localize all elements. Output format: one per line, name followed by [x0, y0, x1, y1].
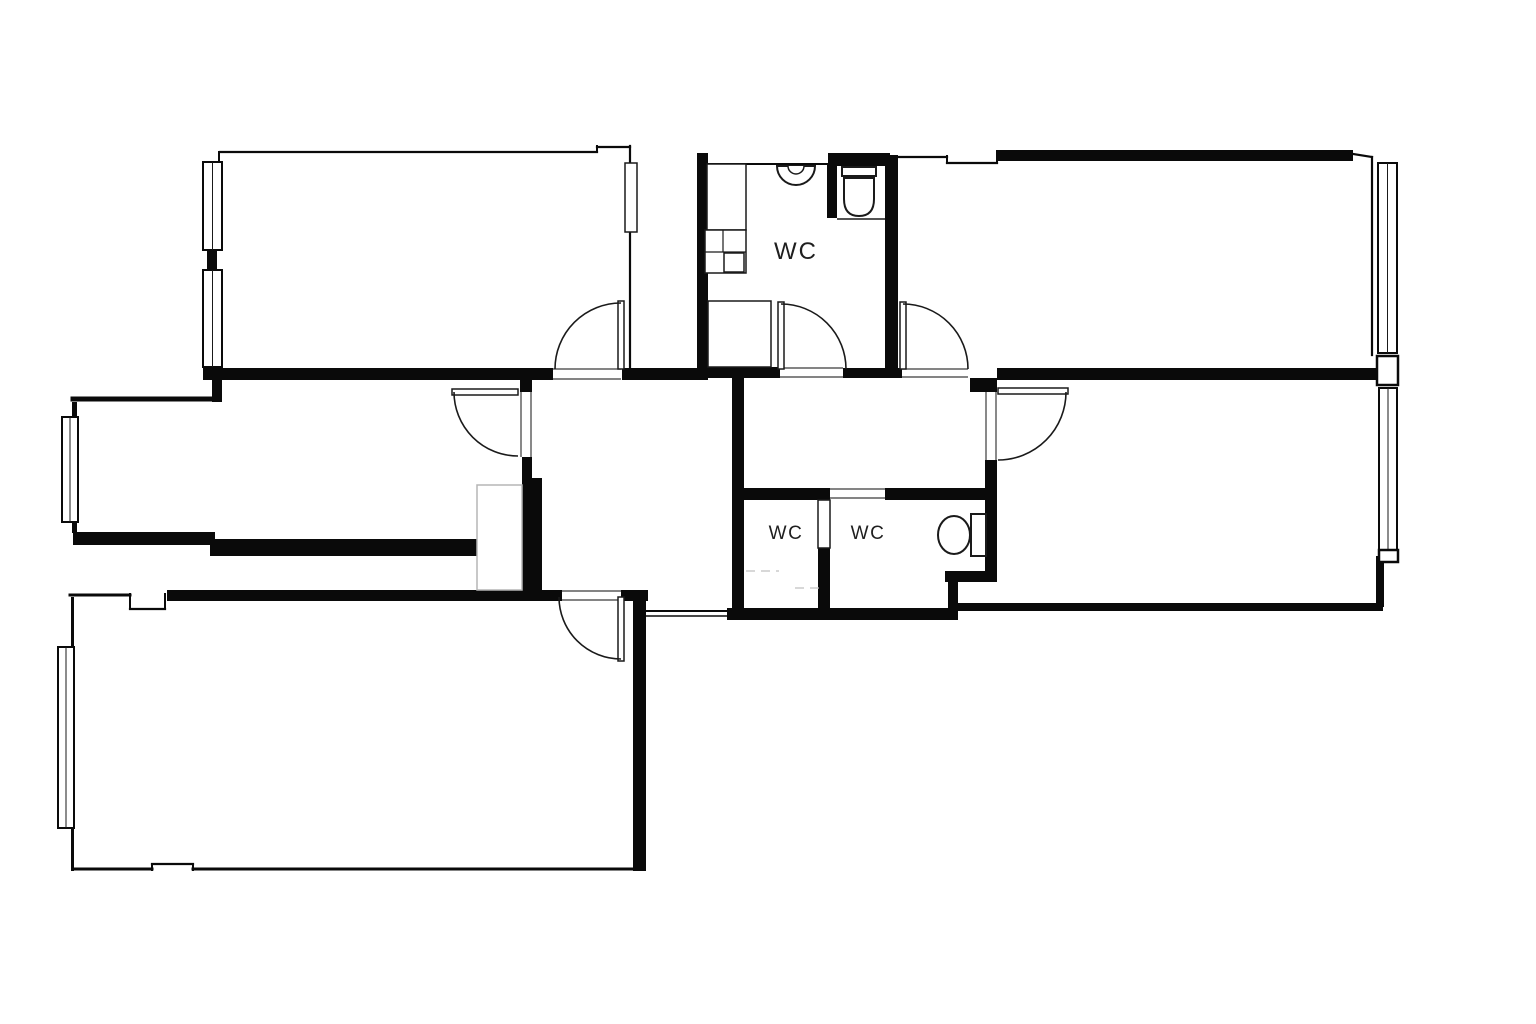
wall [885, 488, 997, 500]
wc-label-left: WC [769, 523, 804, 544]
wall [997, 150, 1353, 161]
wc-door-leaf [818, 500, 830, 548]
wall [732, 378, 744, 618]
wall [633, 590, 646, 871]
wall [167, 590, 562, 601]
toilet-cistern [842, 167, 876, 176]
wall [727, 608, 958, 620]
wall [72, 522, 77, 533]
wall-line [1353, 154, 1372, 157]
wall [72, 402, 77, 417]
wall [1376, 556, 1384, 607]
wall [215, 367, 222, 380]
floor-plan: WC WC WC [0, 0, 1536, 1024]
wall [818, 548, 830, 613]
floor-plan-page: WC WC WC [0, 0, 1536, 1024]
plan-geometry [58, 146, 1398, 871]
wall [697, 367, 780, 378]
wall [622, 368, 708, 380]
wall [828, 153, 890, 166]
cabinet-small-box [724, 253, 744, 272]
door-leaf-middle-left-room [452, 389, 518, 395]
door-leaf-right-room [998, 388, 1068, 394]
bathroom-cabinet [707, 164, 746, 230]
door-leaf-bottom-room [618, 597, 624, 661]
toilet2-bowl [938, 516, 970, 554]
door-arc-middle-left-room [454, 392, 518, 456]
shower-tray [708, 301, 771, 367]
wall [997, 368, 1377, 380]
door-arc-top-left-room [555, 303, 621, 369]
door-arc-top-right-room [903, 304, 968, 369]
wall-pier [1377, 356, 1398, 385]
wall [958, 603, 1383, 611]
wall [71, 827, 74, 871]
wc-label-bathroom: WC [774, 238, 818, 265]
wall [885, 155, 898, 378]
wall [744, 488, 830, 500]
closet-door-leaf [625, 163, 637, 232]
toilet-bowl [844, 178, 874, 216]
door-arc-bottom-room [559, 597, 621, 659]
wc-label-right: WC [851, 523, 886, 544]
wall [520, 380, 532, 392]
wall [522, 478, 542, 592]
wall [970, 378, 997, 392]
wall [71, 597, 74, 647]
door-arc-right-room [998, 392, 1066, 460]
wall [827, 165, 837, 218]
wall [203, 368, 553, 380]
wall [207, 250, 217, 270]
toilet2-cistern [971, 514, 986, 556]
wardrobe [477, 485, 522, 590]
door-arc-top-bathroom [781, 304, 846, 369]
wall-pier [1379, 550, 1398, 562]
wall [522, 457, 532, 478]
door-leaf-top-right-room [900, 302, 906, 369]
door-leaf-top-left-room [618, 301, 624, 369]
wall [73, 532, 215, 545]
door-leaf-top-bathroom [778, 302, 784, 369]
